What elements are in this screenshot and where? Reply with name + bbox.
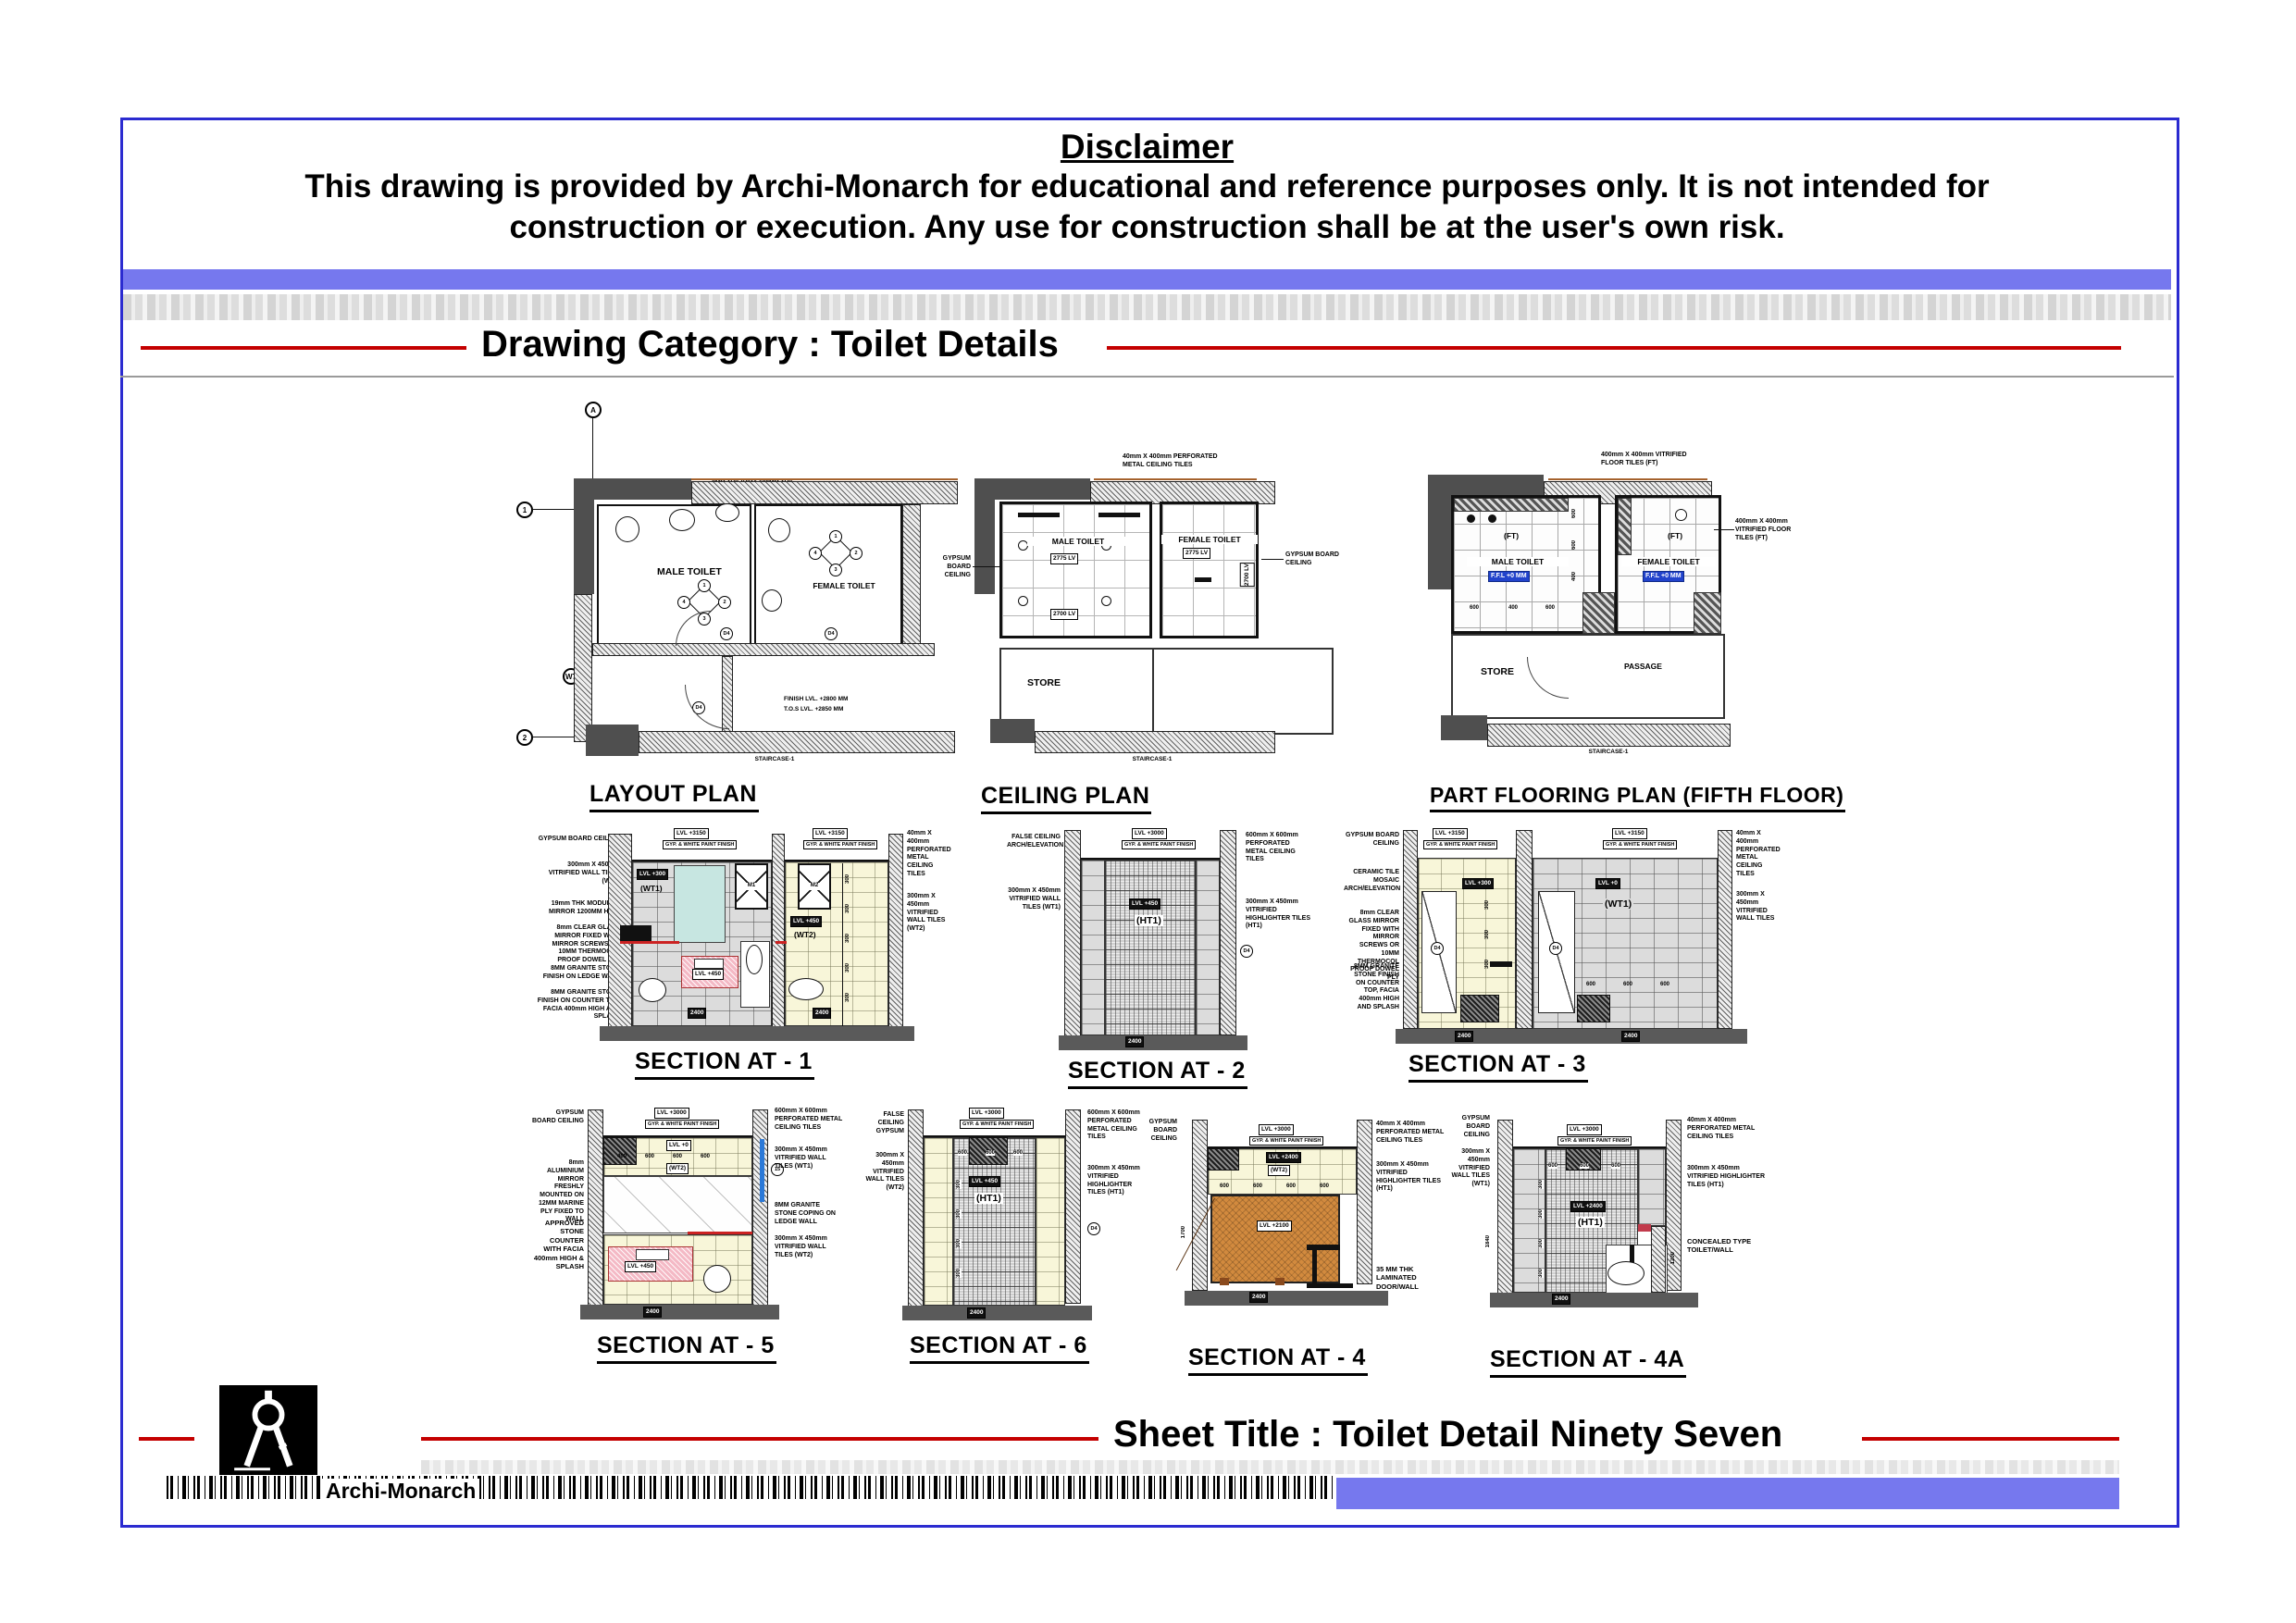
tile-area-wt1 <box>1638 1148 1666 1226</box>
tile-tag: (WT2) <box>794 930 816 939</box>
counter-line <box>620 941 679 944</box>
room-label-female: FEMALE TOILET <box>1621 557 1716 566</box>
counter-support <box>1312 1250 1317 1285</box>
leader-line <box>973 566 1000 567</box>
finish-box: GYP. & WHITE PAINT FINISH <box>1558 1136 1632 1146</box>
drawing-title-s4: SECTION AT - 4 <box>1188 1344 1368 1376</box>
dim-box: 2400 <box>1125 1036 1144 1047</box>
drawing-title-s2: SECTION AT - 2 <box>1068 1058 1247 1089</box>
section-1: GYPSUM BOARD CEILING 300mm X 450mm VITRI… <box>535 826 947 1076</box>
dim-label: 300 <box>956 1180 962 1189</box>
annotation: 300mm X 450mm VITRIFIED HIGHLIGHTER TILE… <box>1376 1161 1450 1194</box>
staircase-label: STAIRCASE-1 <box>1553 749 1664 755</box>
dim-label: 600 <box>1286 1183 1296 1189</box>
layout-plan: A 12MM THK KOTA 100 MM THK. LEDGE WALL 8… <box>511 400 960 818</box>
exhaust-fan: M2 <box>798 863 831 910</box>
level-box: LVL +3150 <box>1612 828 1647 839</box>
gypsum-note-right: GYPSUM BOARD CEILING <box>1285 551 1339 568</box>
ceiling-level-box: 2700 LV <box>1240 563 1255 587</box>
wall <box>1487 724 1731 747</box>
watermark-band <box>123 294 2171 320</box>
leader-line <box>1261 559 1284 560</box>
dim-label: 300 <box>956 1209 962 1219</box>
can-light <box>1101 596 1111 606</box>
dim-box: 2400 <box>1455 1031 1473 1042</box>
finish-box: GYP. & WHITE PAINT FINISH <box>1603 840 1677 849</box>
wall <box>588 1109 603 1315</box>
finish-box: GYP. & WHITE PAINT FINISH <box>663 840 737 849</box>
annotation: 300mm X 450mm VITRIFIED WALL TILES (WT1) <box>775 1146 843 1171</box>
finish-box: GYP. & WHITE PAINT FINISH <box>1122 840 1196 849</box>
level-box: LVL +3150 <box>813 828 848 839</box>
border-tile-strip <box>1454 498 1569 512</box>
purple-band-bottom <box>1336 1478 2119 1509</box>
compass-icon <box>219 1385 317 1475</box>
skirting-block <box>1577 995 1610 1022</box>
wall <box>1192 1120 1208 1291</box>
basin-fixture <box>636 1249 669 1260</box>
tile-tag-box: (WT2) <box>1268 1165 1290 1176</box>
direction-4: 4 <box>809 547 822 560</box>
annotation: GYPSUM BOARD CEILING <box>1448 1115 1490 1139</box>
dim-label: 600 <box>1548 1163 1558 1169</box>
finish-box: GYP. & WHITE PAINT FINISH <box>1249 1136 1323 1146</box>
annotation: 8MM GRANITE STONE COPING ON LEDGE WALL <box>775 1202 843 1226</box>
tile-tag-box: (WT2) <box>666 1163 689 1174</box>
blue-strip <box>760 1139 764 1202</box>
wall-line <box>1548 478 1707 480</box>
dim-label: 400 <box>617 1154 627 1159</box>
tile-area-wt2 <box>924 1137 953 1306</box>
tile-tag: (WT1) <box>1603 898 1633 910</box>
counter-base <box>1307 1283 1353 1288</box>
dim-label: 600 <box>1253 1183 1262 1189</box>
dim-label: 300 <box>1538 1239 1544 1248</box>
direction-1: 1 <box>829 530 842 543</box>
mirror-panel <box>603 1176 752 1233</box>
door-arc <box>685 685 729 729</box>
annotation: 300mm X 450mm VITRIFIED HIGHLIGHTER TILE… <box>1087 1165 1145 1197</box>
skirting-block <box>1208 1148 1239 1171</box>
light-fixture <box>1018 513 1060 517</box>
floor-slab <box>580 1305 779 1319</box>
level-box: LVL +450 <box>790 916 822 927</box>
level-note-1: FINISH LVL. +2800 MM <box>784 696 913 703</box>
mat-area <box>1694 592 1721 634</box>
direction-2: 2 <box>718 596 731 609</box>
door-tag: D4 <box>1087 1222 1100 1235</box>
dim-label: 600 <box>1586 982 1595 987</box>
dim-label: 600 <box>1660 982 1669 987</box>
wc-fixture <box>788 978 824 1000</box>
level-box: LVL +3000 <box>1259 1124 1294 1135</box>
annotation: GYPSUM BOARD CEILING <box>1140 1119 1177 1143</box>
grid-bubble-a: A <box>585 402 602 418</box>
wall <box>1064 830 1081 1041</box>
exhaust-fan: M1 <box>735 863 768 910</box>
wall <box>1428 500 1451 589</box>
annotation: GYPSUM BOARD CEILING <box>532 1109 584 1126</box>
level-box: LVL +300 <box>637 869 668 880</box>
floor-tile-tag: (FT) <box>1504 531 1519 540</box>
room-label-female: FEMALE TOILET <box>1161 535 1258 544</box>
can-light <box>1018 596 1028 606</box>
annotation: CERAMIC TILE MOSAIC ARCH/ELEVATION <box>1344 869 1399 893</box>
category-rule-left <box>141 346 466 350</box>
drain-point <box>1488 514 1496 523</box>
room-label-female: FEMALE TOILET <box>807 581 881 590</box>
tile-tag: (HT1) <box>974 1193 1003 1204</box>
drawing-title-s6: SECTION AT - 6 <box>910 1332 1089 1364</box>
level-box: LVL +450 <box>692 969 724 980</box>
drain-point <box>1467 514 1475 523</box>
floor-tile-tag: (FT) <box>1668 531 1682 540</box>
dim-label: 300 <box>956 1269 962 1278</box>
wall <box>1403 830 1418 1029</box>
floor-slab <box>1490 1293 1698 1307</box>
dim-label: 600 <box>1580 1163 1589 1169</box>
tile-tag: (HT1) <box>1576 1217 1605 1228</box>
ceiling-level-box: 2775 LV <box>1183 548 1210 559</box>
annotation: 300mm X 450mm VITRIFIED WALL TILES (WT2) <box>865 1152 904 1193</box>
level-box: LVL +2400 <box>1570 1201 1606 1212</box>
wall <box>974 478 995 594</box>
purple-band-top <box>123 269 2171 290</box>
direction-3: 3 <box>829 564 842 576</box>
level-box: LVL +450 <box>625 1261 656 1272</box>
dim-box: 2400 <box>1249 1292 1268 1303</box>
wc-fixture <box>615 516 639 542</box>
dim-box: 2400 <box>688 1008 706 1019</box>
tile-area-wt1 <box>1196 860 1220 1035</box>
section-6: FALSE CEILING GYPSUM 300mm X 450mm VITRI… <box>865 1106 1148 1360</box>
fan-label: M2 <box>810 883 819 889</box>
drawing-title-s3: SECTION AT - 3 <box>1409 1051 1588 1083</box>
dim-label: 300 <box>1538 1269 1544 1278</box>
dim-label: 300 <box>956 1239 962 1248</box>
divider-line <box>120 376 2174 378</box>
finish-box: GYP. & WHITE PAINT FINISH <box>645 1120 719 1129</box>
wc-fixture <box>768 518 790 542</box>
laminated-door-panel <box>1210 1195 1340 1283</box>
dim-label: 600 <box>1470 605 1479 611</box>
level-box: LVL +450 <box>969 1176 1000 1187</box>
dim-box: 2400 <box>967 1307 986 1319</box>
drawing-sheet: Disclaimer This drawing is provided by A… <box>0 0 2296 1623</box>
level-box: LVL +3150 <box>1433 828 1468 839</box>
staircase-label: STAIRCASE-1 <box>719 756 830 762</box>
dim-label: 600 <box>1571 540 1577 550</box>
ffl-box: F.F.L +0 MM <box>1488 571 1530 582</box>
light-fixture <box>1098 513 1140 517</box>
wall <box>1035 731 1275 753</box>
basin-fixture <box>669 509 695 531</box>
dim-label: 600 <box>701 1154 710 1159</box>
wall-line <box>1094 478 1257 480</box>
shelf <box>1490 961 1512 967</box>
drawing-title-ceiling: CEILING PLAN <box>981 783 1151 814</box>
annotation: FALSE CEILING ARCH/ELEVATION <box>1007 834 1061 850</box>
drawing-title-s1: SECTION AT - 1 <box>635 1048 814 1080</box>
ceiling-level-box: 2775 LV <box>1050 553 1078 564</box>
grid-line <box>592 418 593 478</box>
door-foot <box>1275 1278 1285 1285</box>
ceiling-fan-icon <box>1195 577 1211 582</box>
watermark-band-bottom <box>421 1460 2119 1474</box>
dim-label: 600 <box>1611 1163 1620 1169</box>
disclaimer-line-1: This drawing is provided by Archi-Monarc… <box>120 168 2174 205</box>
section-4a: GYPSUM BOARD CEILING 300mm X 450mm VITRI… <box>1448 1106 1781 1379</box>
store-passage-outline <box>999 648 1334 735</box>
ceiling-level-box: 2700 LV <box>1050 609 1078 620</box>
mirror-panel <box>674 865 726 943</box>
section-2: FALSE CEILING ARCH/ELEVATION 300mm X 450… <box>1007 826 1314 1081</box>
wc-fixture <box>1607 1261 1644 1285</box>
dim-box: 2400 <box>1621 1031 1640 1042</box>
annotation: 300mm X 450mm VITRIFIED WALL TILES (WT1) <box>1007 887 1061 911</box>
annotation: 300mm X 450mm VITRIFIED WALL TILES (WT2) <box>907 893 947 934</box>
floor-tile-note-right: 400mm X 400mm VITRIFIED FLOOR TILES (FT) <box>1735 518 1793 542</box>
floor-tile-note-top: 400mm X 400mm VITRIFIED FLOOR TILES (FT) <box>1601 452 1707 468</box>
footer-rule-dash-left <box>139 1437 194 1441</box>
room-label-male: MALE TOILET <box>1027 537 1129 546</box>
annotation: GYPSUM BOARD CEILING <box>1344 832 1399 849</box>
tile-area-ht1 <box>1105 860 1196 1035</box>
dim-box: 2400 <box>1552 1294 1570 1305</box>
dim-label: 600 <box>1545 605 1555 611</box>
wall <box>1516 830 1533 1029</box>
floor-slab <box>600 1026 914 1041</box>
dim-label: 600 <box>1571 509 1577 518</box>
wall <box>1220 830 1236 1035</box>
drawing-title-s4a: SECTION AT - 4A <box>1490 1346 1686 1378</box>
wall <box>772 834 785 1035</box>
wall <box>1441 715 1487 740</box>
dim-label: 600 <box>673 1154 682 1159</box>
dim-label: 1700 <box>1181 1226 1186 1238</box>
direction-1: 1 <box>698 579 711 592</box>
annotation: CONCEALED TYPE TOILET/WALL <box>1687 1237 1769 1255</box>
floor-slab <box>1185 1291 1388 1306</box>
dim-label: 600 <box>1013 1150 1023 1156</box>
ceiling-plan: 40mm X 400mm PERFORATED METAL CEILING TI… <box>921 400 1339 818</box>
wall <box>888 834 903 1035</box>
drawing-title-flooring: PART FLOORING PLAN (FIFTH FLOOR) <box>1430 783 1845 812</box>
level-box: LVL +300 <box>1462 878 1494 889</box>
wc-fixture <box>703 1265 731 1293</box>
wall <box>990 719 1035 743</box>
dim-label: 600 <box>986 1150 995 1156</box>
ffl-box: F.F.L +0 MM <box>1643 571 1684 582</box>
room-label-male: MALE TOILET <box>1467 557 1569 566</box>
level-note-2: T.O.S LVL. +2850 MM <box>784 706 913 713</box>
dim-label: 400 <box>1508 605 1518 611</box>
dim-line <box>842 863 843 1026</box>
ceiling-tile-note: 40mm X 400mm PERFORATED METAL CEILING TI… <box>1123 453 1220 470</box>
tile-tag: (HT1) <box>1135 915 1163 926</box>
level-box: LVL +450 <box>1129 898 1160 910</box>
annotation: 8MM GRANITE STONE FINISH ON COUNTER TOP,… <box>1344 963 1399 1012</box>
brand-name: Archi-Monarch <box>322 1479 479 1504</box>
wc-fixture <box>639 978 666 1002</box>
annotation: 300mm X 450mm VITRIFIED WALL TILES <box>1736 891 1779 923</box>
wall <box>902 504 921 648</box>
door-tag: D4 <box>1431 942 1444 955</box>
wall <box>1666 1120 1682 1291</box>
marker-circle <box>1675 509 1687 521</box>
drawing-title-layout: LAYOUT PLAN <box>590 781 759 812</box>
flush-plate <box>1638 1224 1651 1232</box>
annotation: 300mm X 450mm VITRIFIED HIGHLIGHTER TILE… <box>1687 1165 1769 1189</box>
wall-line <box>691 478 958 480</box>
urinal-fixture <box>746 945 763 974</box>
category-heading: Drawing Category : Toilet Details <box>481 324 1059 365</box>
section-5: GYPSUM BOARD CEILING 8mm ALUMINIUM MIRRO… <box>532 1106 845 1360</box>
annotation: APPROVED STONE COUNTER WITH FACIA 400mm … <box>532 1219 584 1270</box>
level-box: LVL +0 <box>666 1140 691 1151</box>
level-box: LVL +3000 <box>1132 828 1167 839</box>
tile-area-wt1 <box>1081 860 1105 1035</box>
dim-box: 2400 <box>643 1307 662 1318</box>
dim-label: 400 <box>1571 572 1577 581</box>
annotation: 300mm X 450mm VITRIFIED WALL TILES (WT1) <box>1448 1148 1490 1189</box>
basin-fixture <box>762 589 782 612</box>
disclaimer-line-2: construction or execution. Any use for c… <box>120 209 2174 246</box>
skirting-block <box>1460 995 1499 1022</box>
door-foot <box>1220 1278 1229 1285</box>
dim-label: 300 <box>1484 900 1490 910</box>
flooring-plan: 400mm X 400mm VITRIFIED FLOOR TILES (FT)… <box>1416 400 1793 824</box>
wall <box>908 1109 924 1315</box>
brand-logo <box>219 1385 317 1475</box>
door-tag: D4 <box>1240 945 1253 958</box>
finish-box: GYP. & WHITE PAINT FINISH <box>803 840 877 849</box>
dim-label: 300 <box>845 993 850 1002</box>
footer-rule-dash-right <box>1862 1437 2119 1441</box>
dim-label: 300 <box>1538 1209 1544 1219</box>
room-label-store: STORE <box>1027 677 1061 688</box>
wall <box>1065 1109 1081 1304</box>
mat-area <box>1582 592 1615 634</box>
annotation: 300mm X 450mm VITRIFIED HIGHLIGHTER TILE… <box>1246 898 1312 931</box>
dim-label: 300 <box>845 963 850 973</box>
category-rule-right <box>1107 346 2121 350</box>
annotation: 8mm ALUMINIUM MIRROR FRESHLY MOUNTED ON … <box>532 1159 584 1224</box>
door-tag: D4 <box>1549 942 1562 955</box>
annotation: 600mm X 600mm PERFORATED METAL CEILING T… <box>1246 832 1312 864</box>
staircase-label: STAIRCASE-1 <box>1097 756 1208 762</box>
grid-bubble-1: 1 <box>516 502 533 518</box>
drawing-title-s5: SECTION AT - 5 <box>597 1332 776 1364</box>
annotation: 40mm X 400mm PERFORATED METAL CEILING TI… <box>1687 1117 1769 1141</box>
dim-box: 2400 <box>813 1008 831 1019</box>
room-label-store: STORE <box>1481 666 1514 677</box>
room-label-male: MALE TOILET <box>657 566 722 577</box>
dim-label: 300 <box>1538 1180 1544 1189</box>
level-box: LVL +3000 <box>654 1108 689 1119</box>
annotation: FALSE CEILING GYPSUM <box>865 1111 904 1135</box>
tile-area-wt2 <box>1036 1137 1065 1306</box>
basin-fixture <box>694 959 724 969</box>
dim-label: 300 <box>1484 930 1490 939</box>
footer-rule-mid <box>421 1437 1098 1441</box>
basin-fixture <box>715 503 739 522</box>
wall <box>639 731 955 753</box>
section-3: GYPSUM BOARD CEILING CERAMIC TILE MOSAIC… <box>1344 826 1781 1076</box>
dim-label: 600 <box>1220 1183 1229 1189</box>
level-box: LVL +3150 <box>674 828 709 839</box>
dim-label: 1840 <box>1485 1235 1491 1247</box>
annotation: 40mm X 400mm PERFORATED METAL CEILING TI… <box>907 830 947 879</box>
gypsum-note-left: GYPSUM BOARD CEILING <box>921 555 971 579</box>
floor-slab <box>1059 1035 1247 1050</box>
dim-label: 600 <box>645 1154 654 1159</box>
border-tile-strip <box>1618 498 1632 555</box>
floor-slab <box>1396 1029 1747 1044</box>
annotation: 40mm X 400mm PERFORATED METAL CEILING TI… <box>1736 830 1779 879</box>
floor-slab <box>902 1306 1092 1320</box>
finish-box: GYP. & WHITE PAINT FINISH <box>1423 840 1497 849</box>
grid-line <box>533 737 574 737</box>
sheet-title: Sheet Title : Toilet Detail Ninety Seven <box>1113 1414 1782 1456</box>
level-box: LVL +3000 <box>1567 1124 1602 1135</box>
skirting-block <box>603 1137 637 1165</box>
dim-label: 600 <box>1320 1183 1329 1189</box>
wall <box>1357 1120 1372 1284</box>
level-box: LVL +3000 <box>969 1108 1004 1119</box>
wall <box>1718 830 1732 1029</box>
dim-label: 300 <box>845 874 850 884</box>
annotation: 35 MM THK LAMINATED DOOR/WALL <box>1376 1265 1450 1291</box>
grid-line <box>533 509 574 510</box>
level-box: LVL +0 <box>1595 878 1620 889</box>
partition <box>1152 648 1154 731</box>
wall <box>1497 1120 1513 1295</box>
annotation: 600mm X 600mm PERFORATED METAL CEILING T… <box>775 1108 843 1132</box>
level-box: LVL +2100 <box>1257 1220 1292 1232</box>
annotation: 300mm X 450mm VITRIFIED WALL TILES (WT2) <box>775 1235 843 1259</box>
fan-label: M1 <box>747 883 756 889</box>
tile-tag: (WT1) <box>640 884 663 893</box>
dim-label: 600 <box>958 1150 967 1156</box>
wall <box>592 643 935 656</box>
door-tag: D4 <box>825 627 838 640</box>
disclaimer-title: Disclaimer <box>120 128 2174 167</box>
room-label-passage: PASSAGE <box>1624 662 1662 671</box>
annotation: 600mm X 600mm PERFORATED METAL CEILING T… <box>1087 1109 1145 1142</box>
annotation: 40mm X 400mm PERFORATED METAL CEILING TI… <box>1376 1121 1450 1145</box>
wall <box>691 481 958 504</box>
wall <box>574 594 592 742</box>
dim-label: 1200 <box>1670 1252 1676 1264</box>
direction-2: 2 <box>850 547 863 560</box>
dim-label: 300 <box>845 934 850 943</box>
wall <box>1651 1226 1666 1293</box>
section-4: GYPSUM BOARD CEILING LVL +3000 GYP. & WH… <box>1140 1106 1462 1374</box>
grid-bubble-2: 2 <box>516 729 533 746</box>
door-tag: D4 <box>720 627 733 640</box>
level-box: LVL +2400 <box>1266 1152 1301 1163</box>
dim-label: 600 <box>1623 982 1632 987</box>
leader-line <box>1714 529 1734 530</box>
counter-line <box>776 941 787 944</box>
wall <box>586 725 639 756</box>
finish-box: GYP. & WHITE PAINT FINISH <box>960 1120 1034 1129</box>
wall <box>574 478 594 594</box>
direction-4: 4 <box>677 596 690 609</box>
dim-label: 300 <box>845 904 850 913</box>
